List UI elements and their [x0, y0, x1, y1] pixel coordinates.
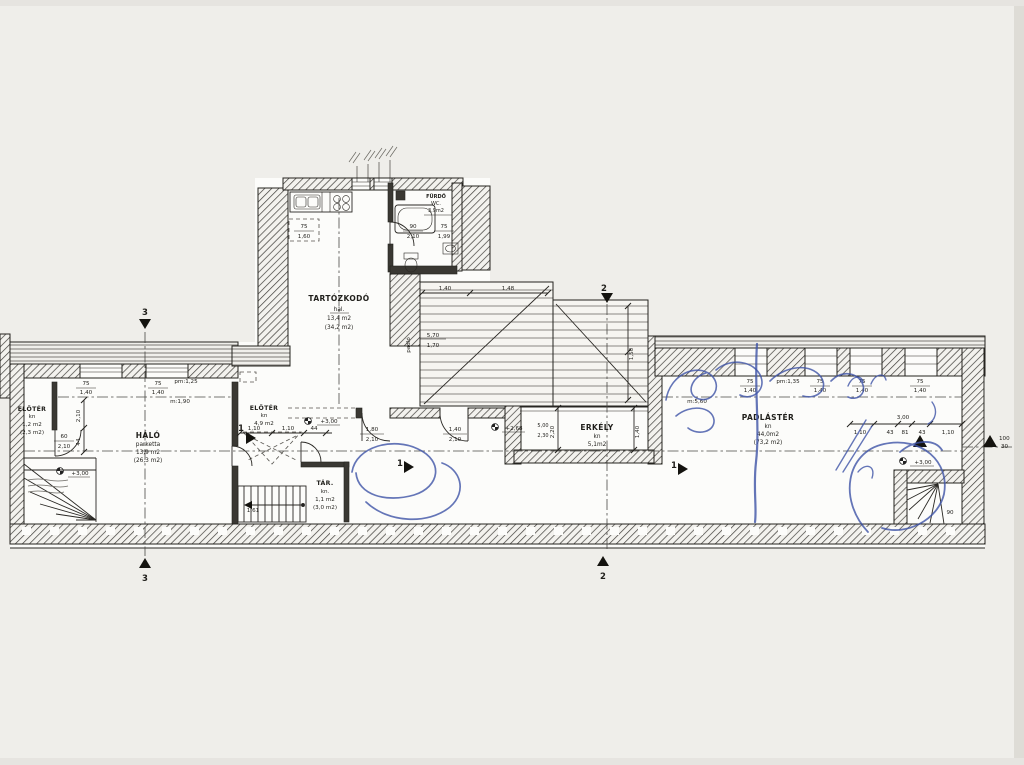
level-left: +3,00	[71, 471, 89, 477]
bath-bottom-wall	[390, 266, 457, 274]
tar-wall-east	[344, 462, 349, 522]
floor-plan-scan: 3 3 2 2 1 1 1 100 30 +3,00 +3,00 +2,68 +…	[0, 0, 1024, 765]
room-erkely-sub: kn	[593, 434, 600, 440]
level-icon-left	[57, 468, 64, 475]
section-2-bottom-label: 2	[600, 572, 606, 582]
level-icon-right	[900, 458, 907, 465]
section-2-top-label: 2	[601, 284, 607, 294]
door-main-w: 1,80	[366, 427, 379, 433]
room-tartozkodo-sub: hal.	[334, 307, 345, 313]
dim-43-a: 43	[886, 430, 894, 436]
dim-44-vert: 44	[76, 438, 82, 446]
room-halo-sub: parketta	[136, 442, 161, 448]
roof-window-w: 75	[300, 224, 308, 230]
room-padlaster-sub: kn	[764, 424, 771, 430]
scan-edge-right	[1014, 0, 1024, 765]
room-furdo-name: FÜRDŐ	[426, 193, 446, 200]
win-l2-h: 1,40	[152, 390, 165, 396]
room-furdo-area: 3,9m2	[428, 208, 444, 214]
head-left: m:1,90	[170, 399, 190, 405]
scan-edge-top	[0, 0, 1024, 6]
dim-150: 1,50	[629, 347, 635, 360]
room-halo-area: 13,9 m2	[136, 450, 160, 456]
room-padlaster-name: PADLÁSTÉR	[742, 413, 794, 422]
section-1-left-label: 1	[238, 424, 244, 434]
dim-570: 5,70	[427, 333, 440, 339]
flue-mass	[390, 274, 420, 346]
bath-window-w: 75	[440, 224, 448, 230]
win-l2-w: 75	[154, 381, 162, 387]
dim-81: 81	[901, 430, 909, 436]
dim-110-b: 1,10	[282, 426, 295, 432]
roof-planes	[420, 282, 648, 411]
outer-wall-east	[962, 348, 984, 524]
roof-band-bath-east	[462, 186, 490, 270]
margin-note-bottom: 30	[1001, 444, 1009, 450]
room-tartozkodo-gross: (34,2 m2)	[325, 325, 354, 331]
section-3-bottom-label: 3	[142, 574, 148, 584]
room-erkely-area: 5,1m2	[588, 442, 607, 448]
kitchen-window-1	[352, 178, 370, 190]
level-erkely: +2,68	[505, 426, 523, 432]
door-entry-h: 2,10	[58, 444, 71, 450]
eaves-band-left	[10, 342, 238, 364]
room-erkely-name: ERKÉLY	[580, 423, 613, 432]
dim-140-balcony: 1,40	[635, 425, 641, 438]
door-balcony-w: 1,40	[449, 427, 462, 433]
window-left-2	[146, 364, 188, 378]
window-right-2	[805, 348, 837, 376]
window-right-4	[905, 348, 937, 376]
parapet-left: pm:1,25	[174, 379, 198, 385]
section-3-top-label: 3	[142, 308, 148, 318]
level-icon-erkely	[492, 424, 499, 431]
dim-230: 2,30	[537, 433, 548, 439]
stair-room-wall-west	[894, 470, 907, 524]
dim-161: 1,61	[247, 508, 260, 514]
note-padlo: padló	[405, 337, 412, 353]
win-r4-w: 75	[916, 379, 924, 385]
room-tartozkodo-name: TARTÓZKODÓ	[308, 294, 369, 303]
dim-110-d: 1,10	[942, 430, 955, 436]
room-eloter-kis-gross: (2,3 m2)	[20, 430, 44, 436]
door-bath-h: 2,10	[407, 234, 420, 240]
room-eloter-name: ELŐTÉR	[250, 403, 278, 412]
room-furdo-sub: WC.	[431, 201, 441, 207]
window-right-3	[850, 348, 882, 376]
roof-band-kitchen-west	[258, 188, 288, 346]
parapet-right: pm:1,35	[776, 379, 800, 385]
door-stair-w: 90	[946, 510, 954, 516]
scan-edge-bottom	[0, 758, 1024, 765]
dim-110-a: 1,10	[248, 426, 261, 432]
room-tar-gross: (3,0 m2)	[313, 505, 337, 511]
room-tartozkodo-area: 13,4 m2	[327, 316, 351, 322]
room-eloter-sub: kn	[261, 413, 268, 419]
tar-wall-top	[301, 462, 349, 467]
plan-svg: 3 3 2 2 1 1 1 100 30 +3,00 +3,00 +2,68 +…	[0, 0, 1024, 765]
roof-window-h: 1,60	[298, 234, 311, 240]
win-l1-w: 75	[82, 381, 90, 387]
partition-halo-a	[232, 382, 238, 446]
door-entry-w: 60	[60, 434, 68, 440]
win-r1-h: 1,40	[744, 388, 757, 394]
section-1-mid-label: 1	[397, 459, 403, 469]
room-halo-gross: (26,3 m2)	[134, 458, 163, 464]
win-r1-w: 75	[746, 379, 754, 385]
window-left-1	[80, 364, 122, 378]
outer-wall-sliver	[0, 334, 10, 398]
door-bath-w: 90	[409, 224, 417, 230]
dim-210-vert: 2,10	[76, 409, 82, 422]
door-main-h: 2,10	[366, 437, 379, 443]
eaves-band-right	[655, 336, 985, 348]
partition-eloter	[52, 382, 57, 430]
room-eloter-kis-name: ELŐTÉR	[18, 404, 46, 413]
bath-divider-a	[388, 183, 393, 222]
corridor-wall-stub	[356, 408, 362, 418]
room-eloter-kis-area: 1,2 m2	[22, 422, 42, 428]
margin-note-top: 100	[999, 436, 1010, 442]
top-wall-left	[10, 364, 238, 378]
level-mid: +3,00	[320, 419, 338, 425]
ridge-band	[232, 346, 290, 366]
room-eloter-kis-sub: kn	[29, 414, 36, 420]
level-icon-mid	[305, 418, 312, 425]
room-padlaster-area: 44,0m2	[757, 432, 780, 438]
bath-east-wall	[452, 183, 462, 271]
balcony-parapet	[514, 450, 654, 463]
win-l1-h: 1,40	[80, 390, 93, 396]
room-tar-name: TÁR.	[317, 478, 334, 487]
dim-140-roof: 1,40	[439, 286, 452, 292]
bath-window-h: 1,99	[438, 234, 451, 240]
dim-43-b: 43	[918, 430, 926, 436]
dim-170: 1,70	[427, 343, 440, 349]
level-right: +3,00	[914, 460, 932, 466]
room-halo-name: HÁLÓ	[136, 431, 161, 440]
room-tar-area: 1,1 m2	[315, 497, 335, 503]
dim-148-roof: 1,48	[502, 286, 515, 292]
dim-500: 5,00	[537, 423, 548, 429]
dim-220: 2,20	[550, 425, 556, 438]
room-tar-sub: kn.	[321, 489, 330, 495]
outer-wall-west	[10, 364, 24, 524]
win-r4-h: 1,40	[914, 388, 927, 394]
section-1-right-label: 1	[671, 461, 677, 471]
partition-halo-b	[232, 466, 238, 524]
kitchen-top-wall	[283, 178, 463, 190]
door-balcony-h: 2,10	[449, 437, 462, 443]
corridor-wall-a	[390, 408, 440, 418]
dim-44-a: 44	[310, 426, 318, 432]
dim-300-right: 3,00	[897, 415, 910, 421]
